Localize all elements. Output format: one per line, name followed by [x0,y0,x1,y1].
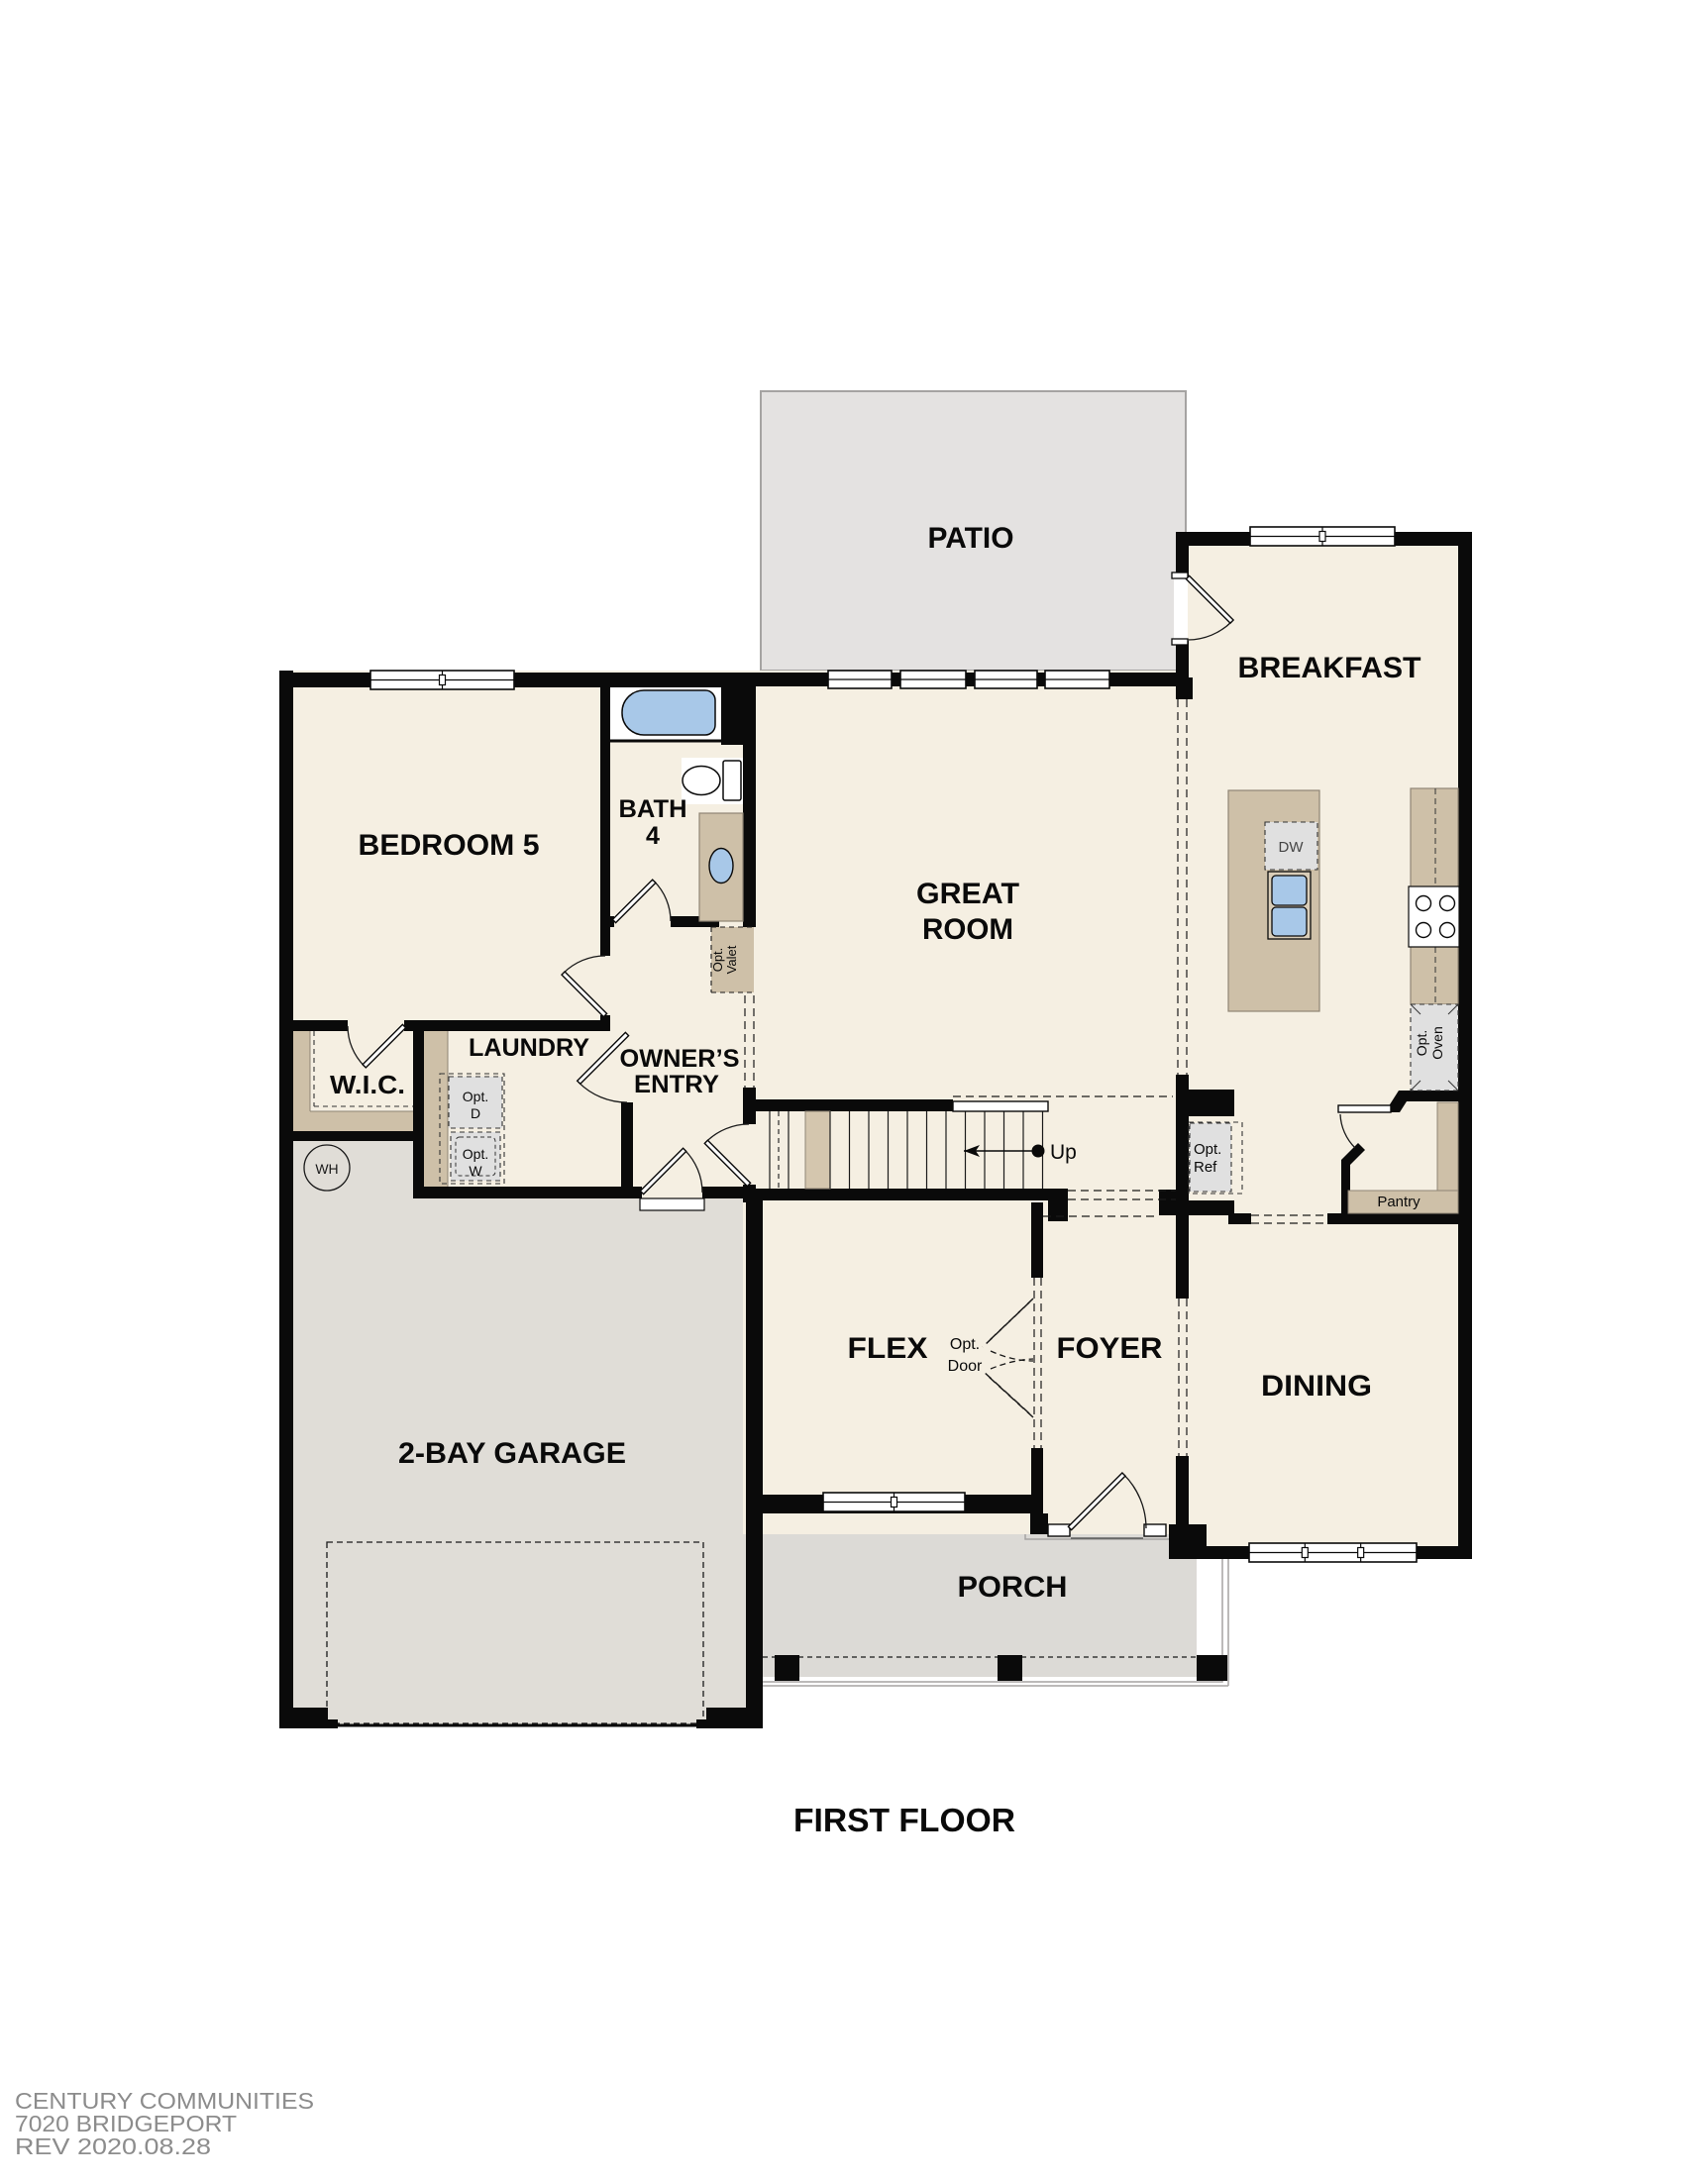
svg-text:Valet: Valet [724,945,739,974]
svg-text:BATH: BATH [619,795,687,823]
svg-text:Opt.: Opt. [710,948,725,973]
svg-text:GREAT: GREAT [916,878,1019,910]
svg-text:Pantry: Pantry [1377,1194,1421,1210]
svg-text:BREAKFAST: BREAKFAST [1238,652,1421,684]
svg-text:REV 2020.08.28: REV 2020.08.28 [15,2133,211,2159]
svg-text:Opt.: Opt. [463,1089,488,1104]
svg-text:2-BAY GARAGE: 2-BAY GARAGE [398,1437,626,1470]
svg-text:LAUNDRY: LAUNDRY [469,1034,589,1062]
svg-text:PATIO: PATIO [928,522,1014,555]
svg-text:W.I.C.: W.I.C. [330,1070,405,1099]
svg-text:PORCH: PORCH [958,1571,1068,1604]
svg-text:WH: WH [315,1161,338,1177]
svg-text:DW: DW [1279,839,1305,856]
svg-text:4: 4 [646,822,660,850]
svg-text:ENTRY: ENTRY [634,1071,719,1098]
svg-text:Opt.: Opt. [463,1146,488,1162]
svg-text:OWNER’S: OWNER’S [620,1045,740,1073]
svg-text:Opt.: Opt. [1414,1030,1429,1056]
svg-text:D: D [471,1105,480,1121]
svg-text:ROOM: ROOM [922,913,1013,946]
svg-text:Door: Door [948,1358,983,1375]
svg-text:Up: Up [1050,1141,1077,1164]
svg-text:DINING: DINING [1261,1370,1372,1403]
svg-text:Ref: Ref [1194,1159,1217,1176]
svg-text:Opt.: Opt. [950,1336,980,1353]
svg-text:BEDROOM 5: BEDROOM 5 [359,829,540,862]
svg-text:W: W [469,1163,482,1179]
svg-text:FOYER: FOYER [1057,1332,1163,1365]
svg-text:FLEX: FLEX [848,1332,928,1365]
svg-text:FIRST FLOOR: FIRST FLOOR [793,1802,1015,1838]
svg-text:Opt.: Opt. [1194,1141,1221,1158]
svg-text:Oven: Oven [1429,1026,1445,1059]
